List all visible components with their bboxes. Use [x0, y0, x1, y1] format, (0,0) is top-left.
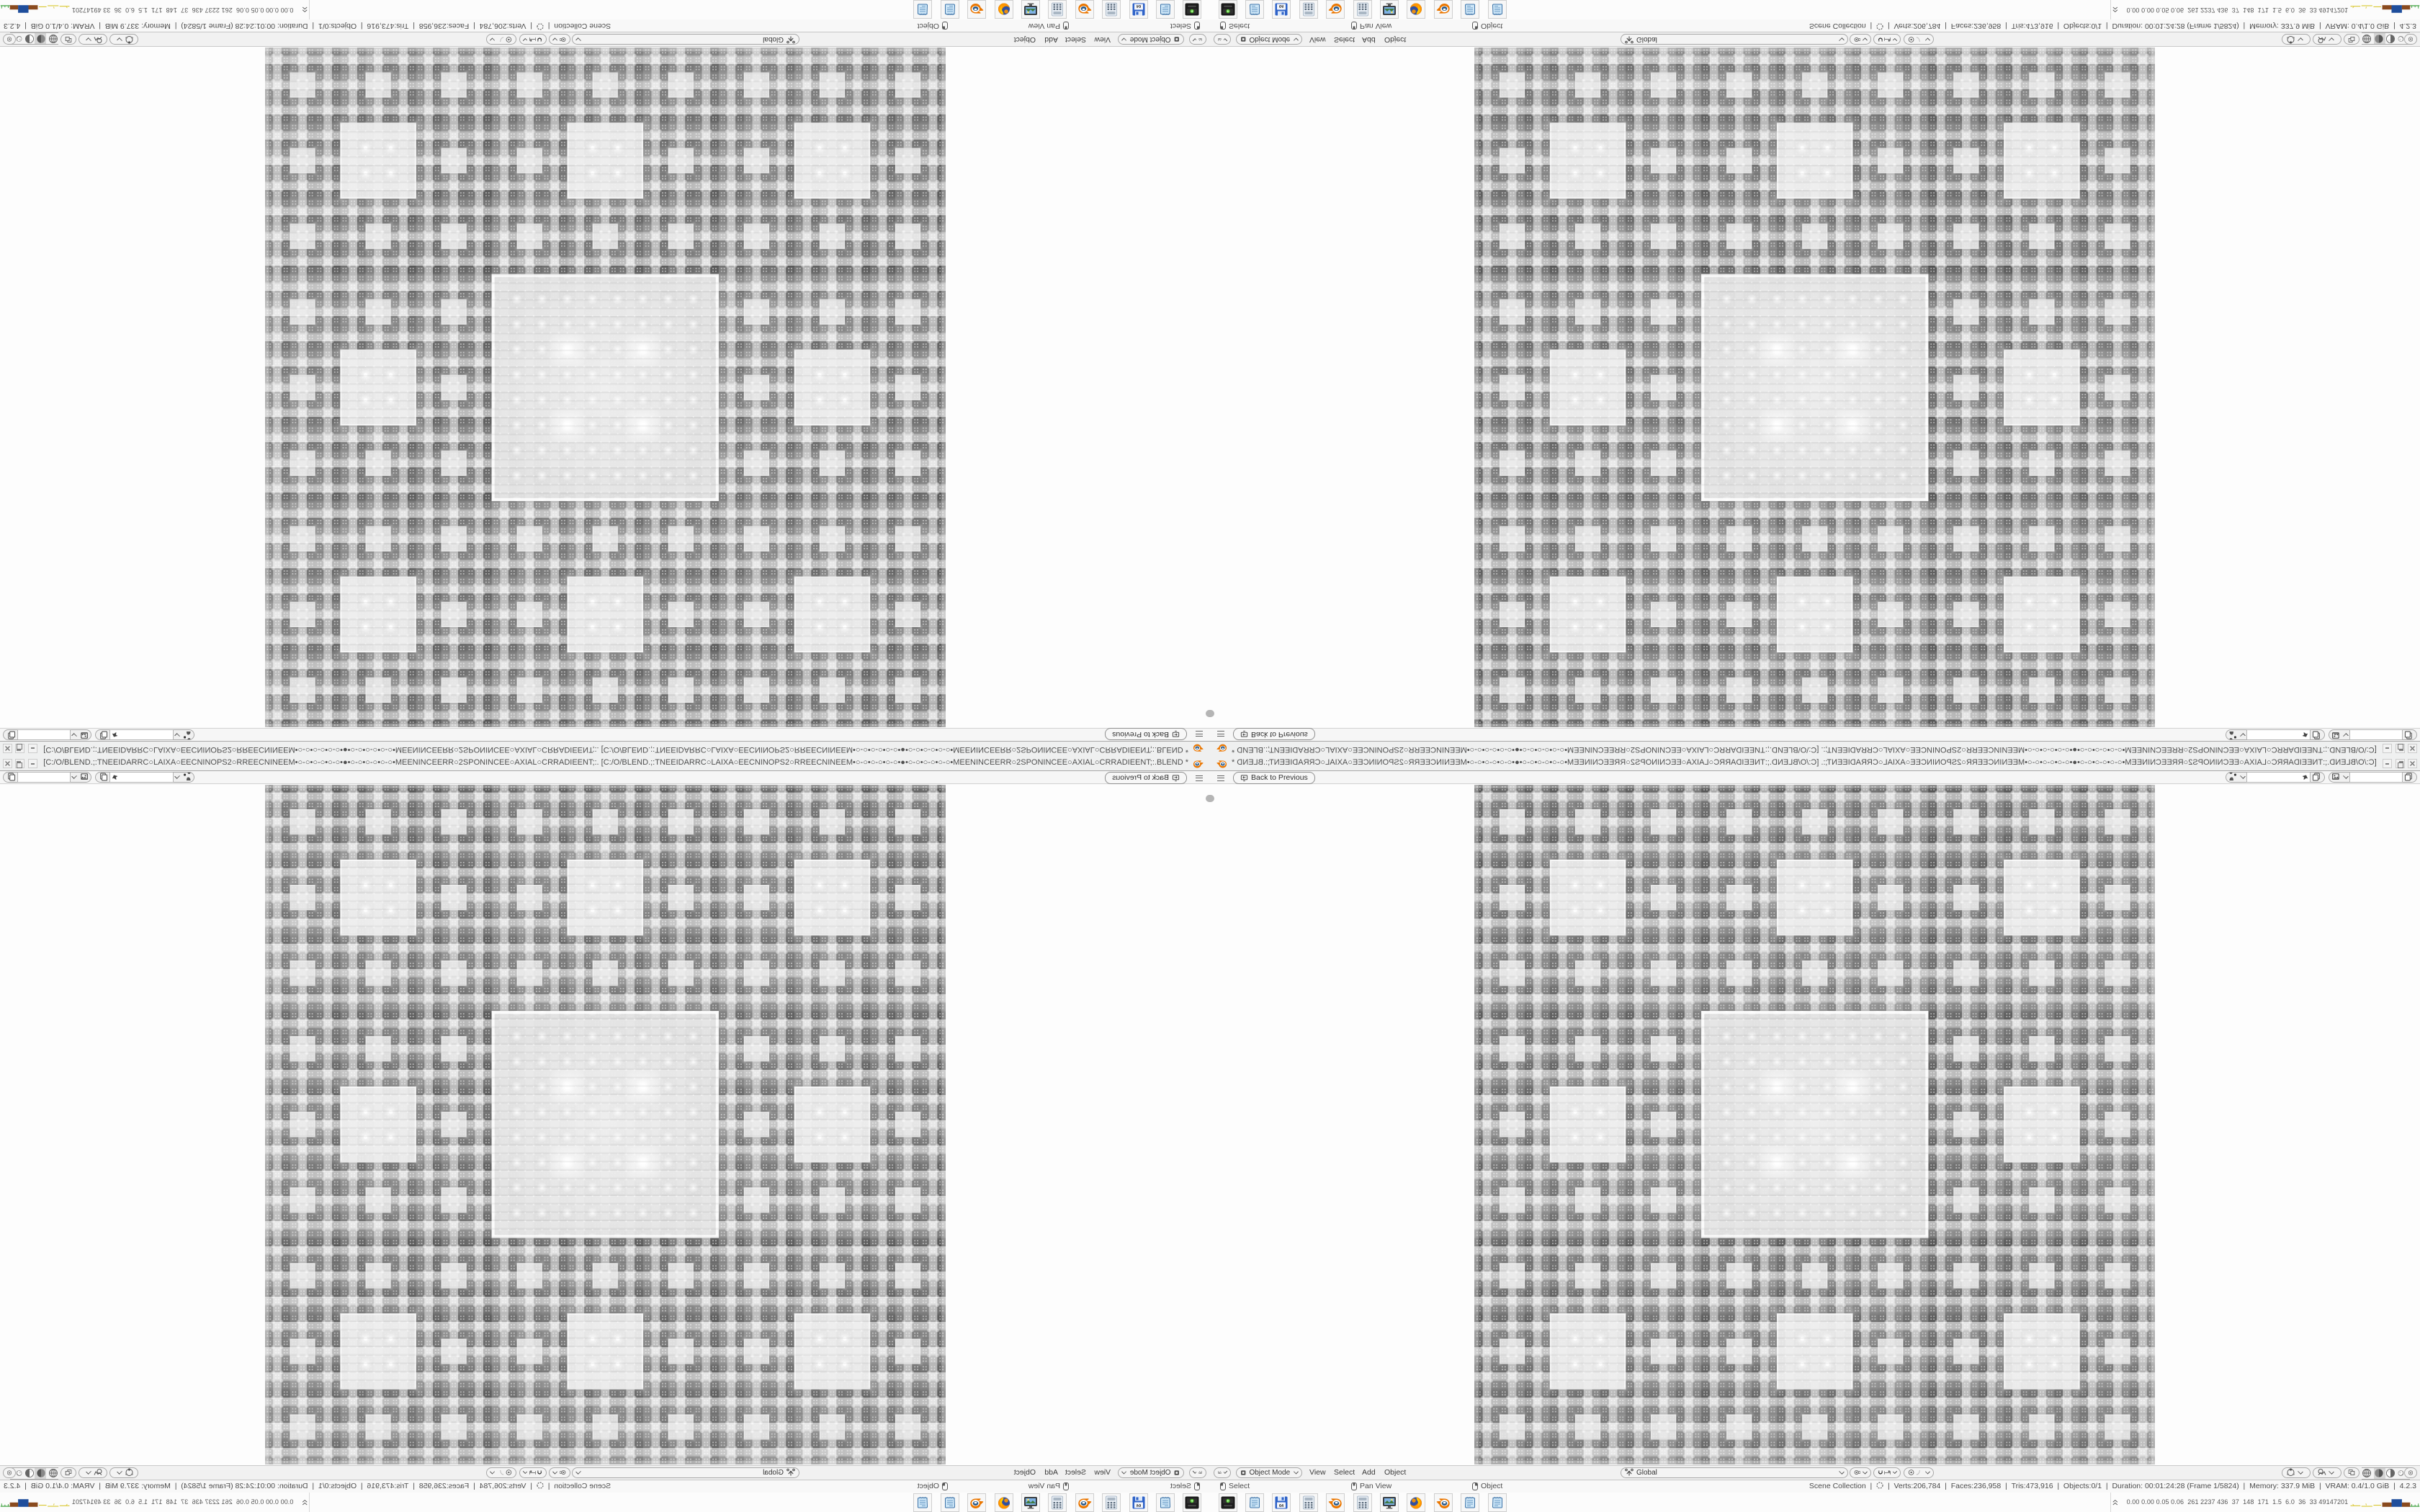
svg-text:64: 64	[1279, 1504, 1284, 1508]
svg-text:64: 64	[1136, 4, 1141, 8]
svg-text:64: 64	[1136, 1504, 1141, 1508]
svg-text:64: 64	[1279, 4, 1284, 8]
